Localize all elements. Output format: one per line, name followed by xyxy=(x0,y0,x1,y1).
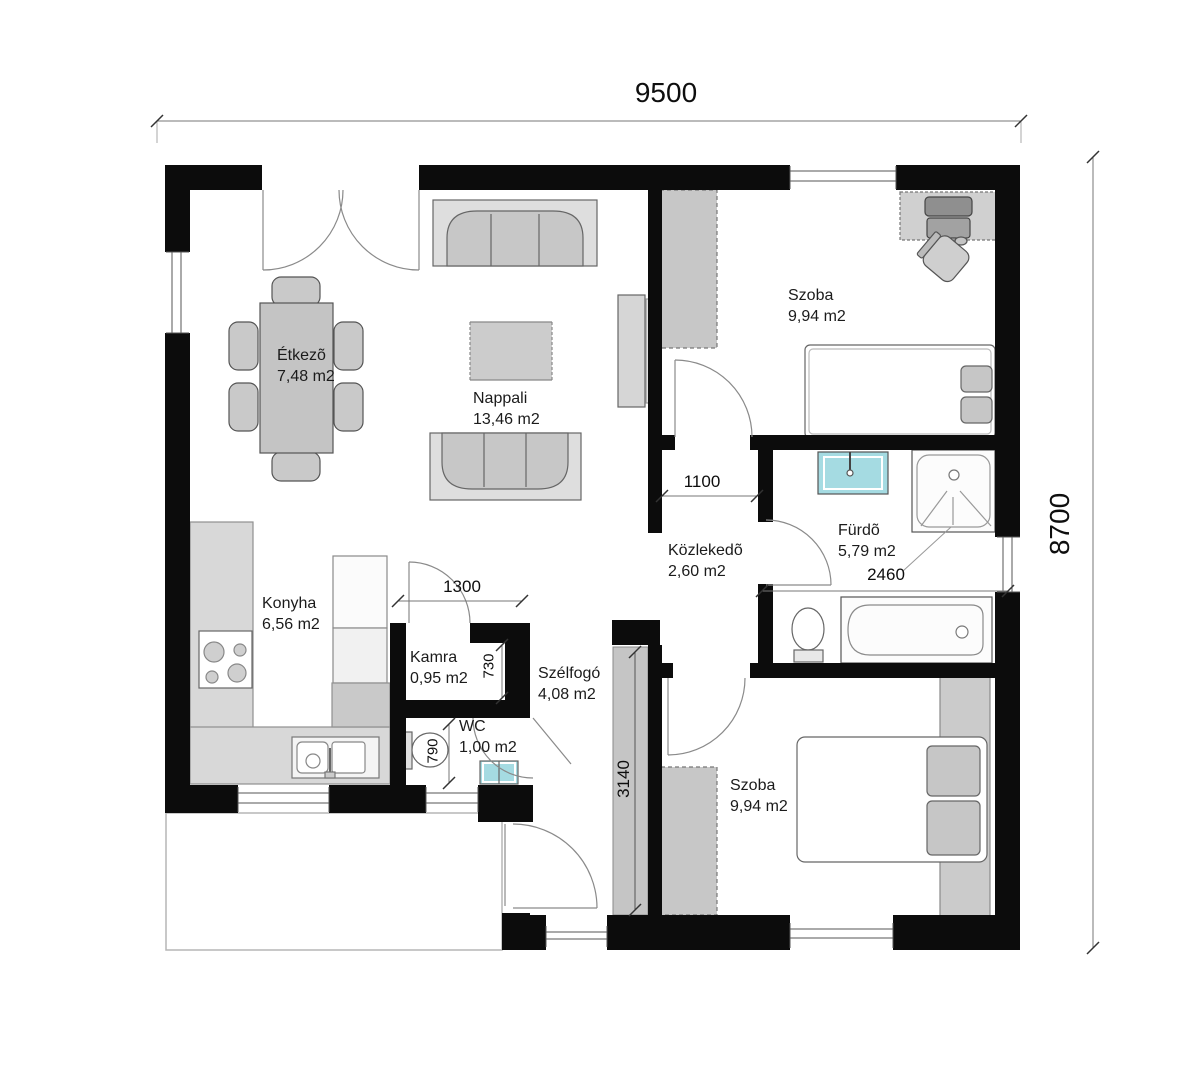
room-area: 0,95 m2 xyxy=(410,669,468,690)
wall-segment xyxy=(478,785,533,822)
dining-chair xyxy=(272,452,320,481)
window xyxy=(166,252,189,333)
front-door xyxy=(505,824,597,908)
dimension-pantry-depth-label: 730 xyxy=(481,653,498,678)
sink-drainer xyxy=(332,742,365,773)
room-area: 5,79 m2 xyxy=(838,542,896,563)
living-room-furniture xyxy=(430,200,651,500)
room-label-wc: WC 1,00 m2 xyxy=(459,717,517,759)
dining-chair xyxy=(334,383,363,431)
wall-segment xyxy=(165,785,238,813)
wall-segment xyxy=(165,165,190,252)
wall-segment xyxy=(995,165,1020,537)
dimension-line-width xyxy=(151,115,1027,143)
room-name: Fürdõ xyxy=(838,521,896,542)
wall-segment xyxy=(648,645,662,915)
bedroom1-door xyxy=(675,360,752,437)
wall-segment xyxy=(648,190,662,533)
dining-chair xyxy=(229,383,258,431)
cooktop-burner xyxy=(234,644,246,656)
room-area: 2,60 m2 xyxy=(668,562,743,583)
sofa-seat xyxy=(447,211,583,266)
window xyxy=(997,537,1020,592)
cooktop-burner xyxy=(204,642,224,662)
dimension-pantry-width-label: 1300 xyxy=(443,577,481,597)
room-name: Étkezõ xyxy=(277,346,335,367)
refrigerator xyxy=(333,556,387,628)
washbasin-drain xyxy=(847,470,853,476)
room-label-kozlekedo: Közlekedõ 2,60 m2 xyxy=(668,541,743,583)
tv-cabinet xyxy=(618,295,645,407)
floor-plan-page: 9500 8700 1100 2460 1300 730 790 3140 Ét… xyxy=(0,0,1200,1068)
wall-segment xyxy=(995,592,1020,950)
room-name: Szoba xyxy=(730,776,788,797)
wall-segment xyxy=(750,435,995,450)
wall-segment xyxy=(648,435,675,450)
room-label-furdo: Fürdõ 5,79 m2 xyxy=(838,521,896,563)
window xyxy=(790,166,896,189)
room-area: 1,00 m2 xyxy=(459,738,517,759)
room-label-szoba2: Szoba 9,94 m2 xyxy=(730,776,788,818)
room-name: WC xyxy=(459,717,517,738)
cooktop-burner xyxy=(206,671,218,683)
bathtub xyxy=(841,597,992,663)
dimension-wc-label: 790 xyxy=(425,738,442,763)
kitchen-furniture xyxy=(190,522,390,784)
pillow xyxy=(961,366,992,392)
wall-segment xyxy=(530,915,546,950)
wall-segment xyxy=(329,785,426,813)
room-area: 4,08 m2 xyxy=(538,685,600,706)
window xyxy=(238,787,329,812)
room-name: Szélfogó xyxy=(538,664,600,685)
dimension-height-label: 8700 xyxy=(1044,493,1076,555)
wall-segment xyxy=(419,165,790,190)
room-label-kamra: Kamra 0,95 m2 xyxy=(410,648,468,690)
kitchen-cabinet xyxy=(332,683,390,727)
wardrobe xyxy=(661,767,717,915)
dining-chair xyxy=(272,277,320,306)
room-label-konyha: Konyha 6,56 m2 xyxy=(262,594,320,636)
wall-segment xyxy=(502,913,530,950)
dimension-partition-label: 3140 xyxy=(614,760,634,798)
coffee-table xyxy=(470,322,552,380)
kitchen-counter xyxy=(190,522,253,728)
floor-plan-drawing xyxy=(0,0,1200,1068)
dimension-bathroom-label: 2460 xyxy=(867,565,905,585)
window xyxy=(426,787,478,812)
room-name: Közlekedõ xyxy=(668,541,743,562)
toilet xyxy=(792,608,824,650)
room-label-nappali: Nappali 13,46 m2 xyxy=(473,389,540,431)
dimension-hall-label: 1100 xyxy=(684,472,721,492)
pillow xyxy=(961,397,992,423)
room-label-szelfogo: Szélfogó 4,08 m2 xyxy=(538,664,600,706)
bedroom2-door xyxy=(668,678,745,755)
dining-chair xyxy=(334,322,363,370)
sink-faucet-handle xyxy=(325,772,335,778)
pillow xyxy=(927,801,980,855)
pillow xyxy=(927,746,980,796)
dimension-width-label: 9500 xyxy=(635,77,697,109)
room-name: Nappali xyxy=(473,389,540,410)
window xyxy=(790,923,893,948)
room-area: 9,94 m2 xyxy=(730,797,788,818)
dimension-line-height xyxy=(1087,151,1099,954)
room-area: 7,48 m2 xyxy=(277,367,335,388)
bathtub-drain xyxy=(956,626,968,638)
dining-chair xyxy=(229,322,258,370)
room-label-etkezo: Étkezõ 7,48 m2 xyxy=(277,346,335,388)
bathroom-door xyxy=(766,520,831,585)
room-area: 9,94 m2 xyxy=(788,307,846,328)
entrance-double-door xyxy=(263,190,419,270)
terrace-outline xyxy=(166,813,502,950)
room-area: 13,46 m2 xyxy=(473,410,540,431)
room-name: Konyha xyxy=(262,594,320,615)
wall-segment xyxy=(612,620,660,645)
wall-segment xyxy=(390,700,530,718)
cooktop-burner xyxy=(228,664,246,682)
monitor xyxy=(925,197,972,216)
kitchen-cabinet xyxy=(333,628,387,683)
wall-segment xyxy=(607,915,790,950)
wall-segment xyxy=(758,442,773,522)
wall-segment xyxy=(165,333,190,813)
room-area: 6,56 m2 xyxy=(262,615,320,636)
room-label-szoba1: Szoba 9,94 m2 xyxy=(788,286,846,328)
toilet-tank xyxy=(794,650,823,662)
room-name: Kamra xyxy=(410,648,468,669)
wall-segment xyxy=(750,663,995,678)
window xyxy=(546,926,607,947)
shower-drain xyxy=(949,470,959,480)
room-name: Szoba xyxy=(788,286,846,307)
bedroom2-furniture xyxy=(661,677,990,922)
wardrobe xyxy=(660,190,717,348)
sofa-seat xyxy=(442,433,568,489)
